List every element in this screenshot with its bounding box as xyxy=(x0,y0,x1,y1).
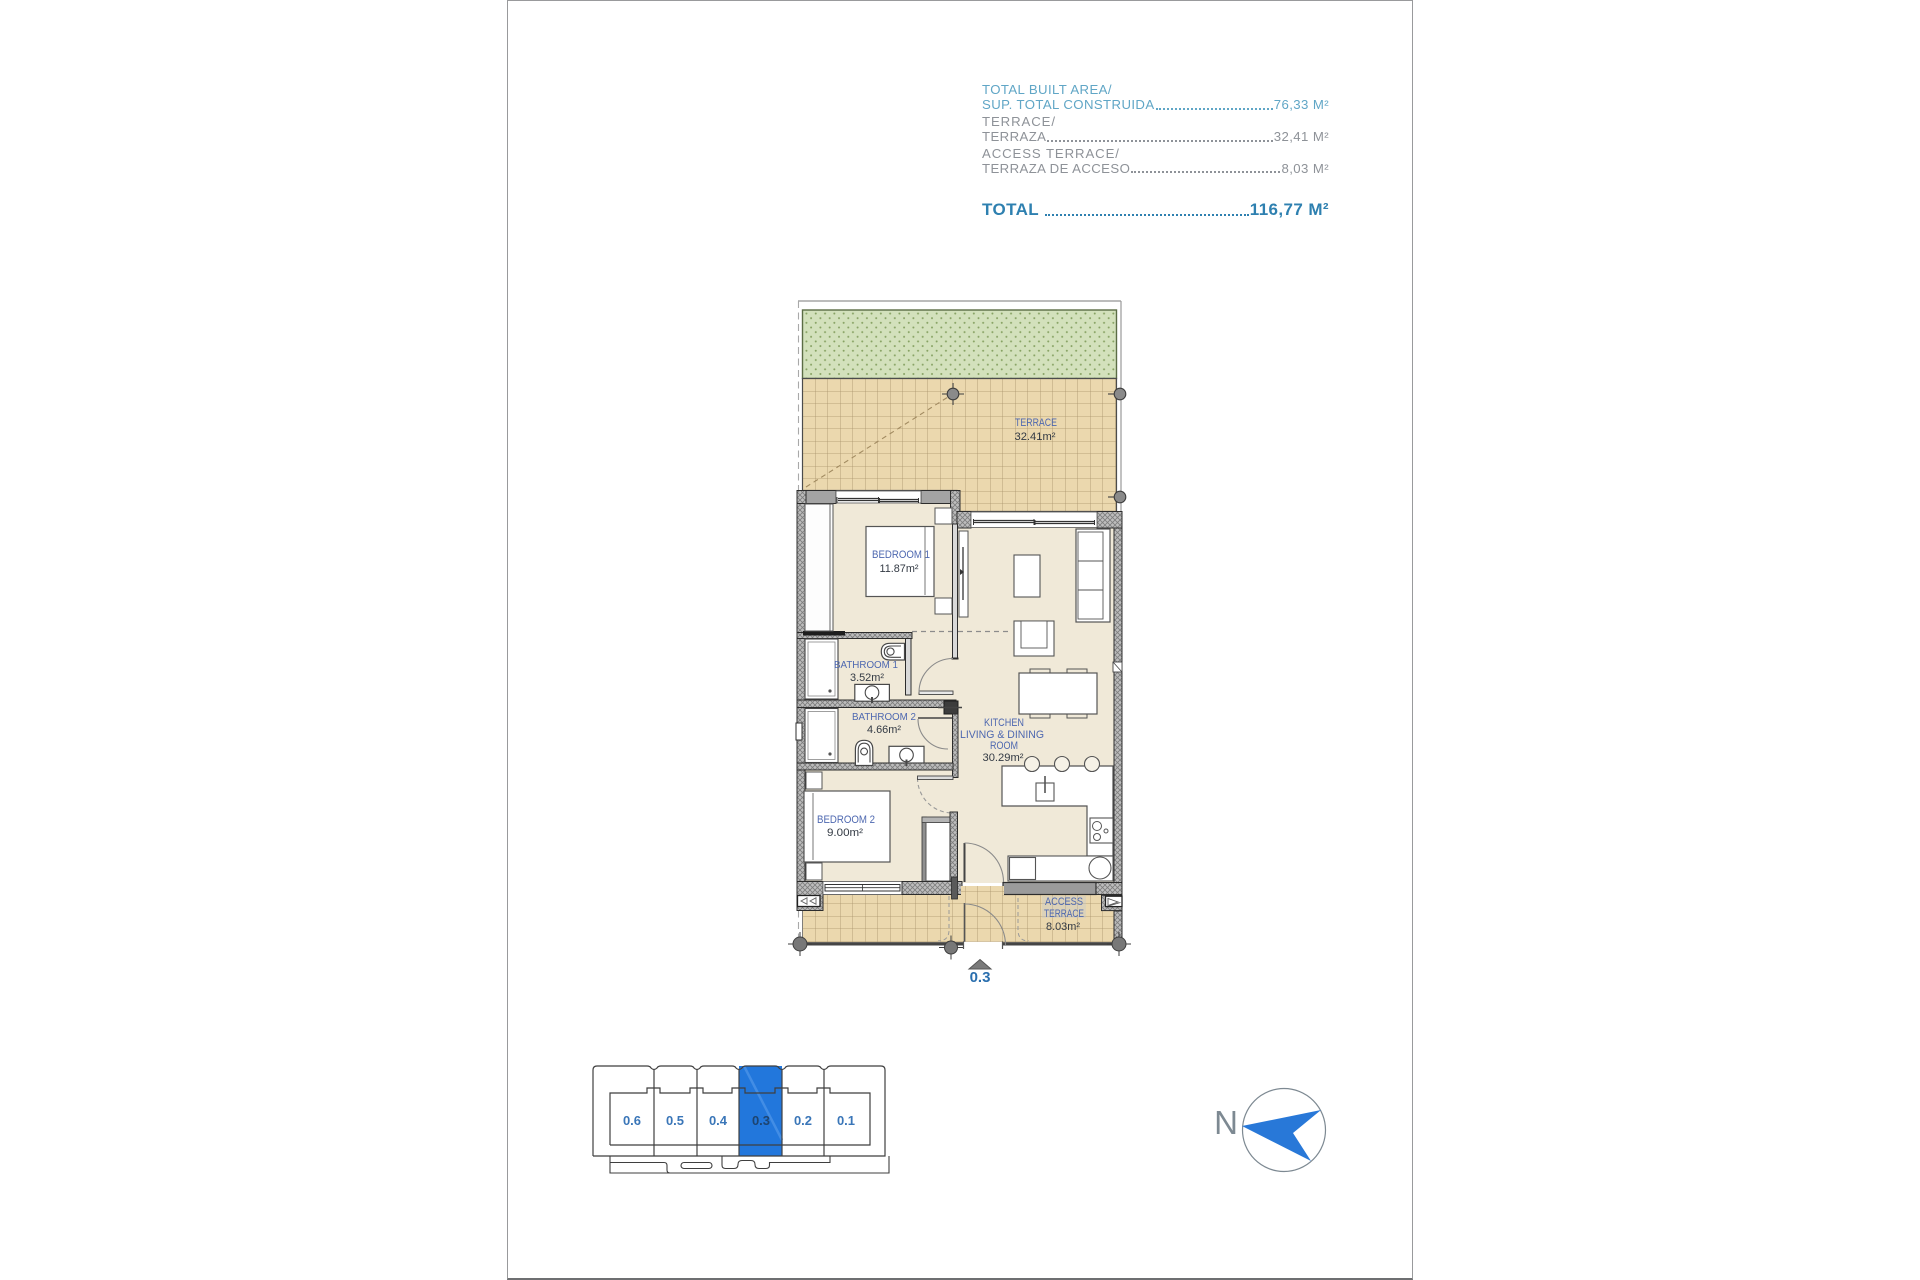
svg-text:0.6: 0.6 xyxy=(623,1113,641,1128)
svg-text:0.3: 0.3 xyxy=(752,1113,770,1128)
svg-text:TERRACE: TERRACE xyxy=(1044,908,1084,920)
svg-text:3.52m²: 3.52m² xyxy=(850,672,884,684)
svg-text:4.66m²: 4.66m² xyxy=(867,724,901,736)
svg-text:BEDROOM 1: BEDROOM 1 xyxy=(872,549,930,561)
svg-text:0.4: 0.4 xyxy=(709,1113,728,1128)
svg-text:BATHROOM 1: BATHROOM 1 xyxy=(834,660,898,671)
svg-text:BEDROOM 2: BEDROOM 2 xyxy=(817,814,875,826)
svg-text:KITCHEN: KITCHEN xyxy=(984,717,1024,729)
svg-text:N: N xyxy=(1214,1104,1238,1141)
svg-text:ROOM: ROOM xyxy=(990,740,1018,752)
svg-text:32.41m²: 32.41m² xyxy=(1015,431,1056,443)
svg-text:0.1: 0.1 xyxy=(837,1113,855,1128)
svg-text:8.03m²: 8.03m² xyxy=(1046,921,1080,933)
svg-text:11.87m²: 11.87m² xyxy=(880,563,919,575)
svg-text:BATHROOM 2: BATHROOM 2 xyxy=(852,712,916,723)
svg-text:0.5: 0.5 xyxy=(666,1113,684,1128)
svg-text:9.00m²: 9.00m² xyxy=(827,827,863,839)
svg-text:0.2: 0.2 xyxy=(794,1113,812,1128)
svg-text:0.3: 0.3 xyxy=(970,969,991,986)
svg-text:30.29m²: 30.29m² xyxy=(983,752,1024,764)
svg-text:TERRACE: TERRACE xyxy=(1015,417,1057,429)
svg-text:ACCESS: ACCESS xyxy=(1045,896,1083,908)
